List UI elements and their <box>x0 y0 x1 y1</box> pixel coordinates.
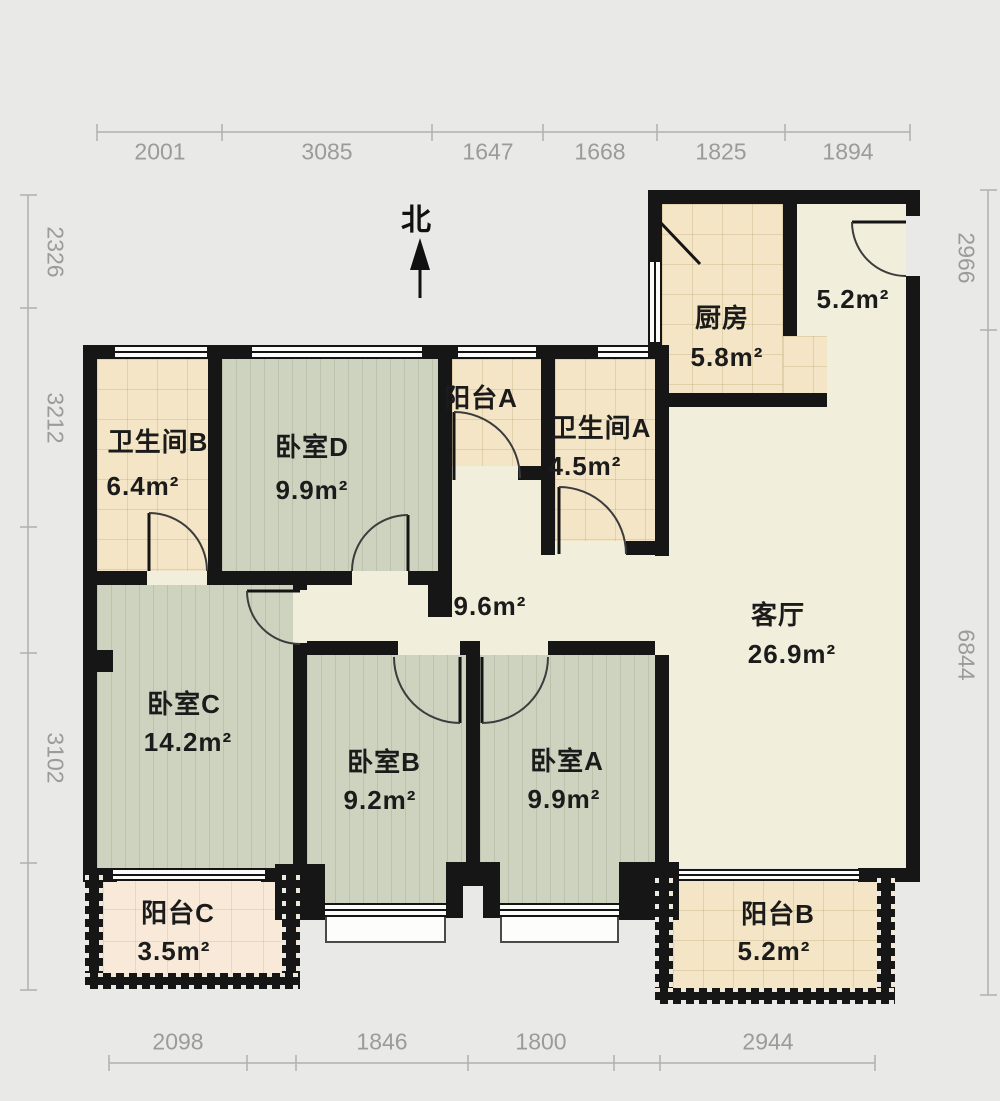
wall-segment <box>655 393 827 407</box>
window-symbol <box>679 869 859 881</box>
window-symbol <box>325 903 446 917</box>
balcony-wall <box>877 878 895 1004</box>
window-symbol <box>500 903 619 917</box>
room-area-kitchen: 5.8m² <box>691 344 764 370</box>
wall-segment <box>97 571 147 585</box>
floor-balcony-b <box>673 880 877 988</box>
room-area-living: 26.9m² <box>748 641 836 667</box>
balcony-wall <box>282 875 300 989</box>
room-area-balcony-b: 5.2m² <box>738 938 811 964</box>
room-area-hallway: 9.6m² <box>454 593 527 619</box>
balcony-wall <box>85 875 103 989</box>
dim-left-1: 2326 <box>44 226 67 277</box>
room-label-living: 客厅 <box>751 602 805 628</box>
window-symbol <box>458 345 536 359</box>
room-area-entry: 5.2m² <box>817 286 890 312</box>
wall-segment <box>648 190 920 204</box>
dim-bottom-1: 2098 <box>152 1031 203 1054</box>
wall-segment <box>293 571 307 590</box>
window-symbol <box>115 345 207 359</box>
wall-pier <box>83 650 113 672</box>
dim-left-2: 3212 <box>44 392 67 443</box>
window-symbol <box>598 345 648 359</box>
dim-right-2: 6844 <box>955 629 978 680</box>
wall-segment <box>783 204 797 336</box>
floor-plan-page: { "north_label": "北", "dimensions": { "t… <box>0 0 1000 1101</box>
wall-segment <box>655 655 669 868</box>
room-label-kitchen: 厨房 <box>695 305 749 331</box>
room-area-bedroom-c: 14.2m² <box>144 729 232 755</box>
dim-top-6: 1894 <box>822 141 873 164</box>
room-area-bathroom-a: 4.5m² <box>549 453 622 479</box>
wall-segment <box>438 345 452 585</box>
dim-top-3: 1647 <box>462 141 513 164</box>
room-label-bedroom-b: 卧室B <box>347 749 421 775</box>
room-area-bedroom-d: 9.9m² <box>276 477 349 503</box>
balcony-wall <box>655 988 895 1004</box>
wall-segment <box>207 571 352 585</box>
floor-bedroom-d <box>222 359 438 571</box>
dim-right-1: 2966 <box>955 232 978 283</box>
room-label-bathroom-b: 卫生间B <box>108 429 209 455</box>
wall-segment <box>541 345 555 555</box>
room-area-bathroom-b: 6.4m² <box>107 473 180 499</box>
dim-top-5: 1825 <box>695 141 746 164</box>
wall-stub <box>428 585 452 617</box>
window-symbol <box>252 345 422 359</box>
wall-segment <box>307 641 398 655</box>
dim-left-3: 3102 <box>44 732 67 783</box>
room-label-bedroom-c: 卧室C <box>147 691 221 717</box>
wall-segment <box>548 641 655 655</box>
floor-bathroom-a <box>555 359 655 541</box>
bay-window-sill <box>325 917 446 943</box>
room-label-bedroom-a: 卧室A <box>530 748 604 774</box>
north-label: 北 <box>401 195 431 239</box>
window-symbol <box>113 868 265 881</box>
room-label-bedroom-d: 卧室D <box>275 434 349 460</box>
room-label-balcony-a: 阳台A <box>444 385 518 411</box>
wall-notch <box>463 886 483 918</box>
dim-top-2: 3085 <box>301 141 352 164</box>
wall-segment <box>655 345 669 556</box>
floor-bedroom-b <box>307 655 466 905</box>
wall-segment <box>83 345 97 882</box>
dim-top-1: 2001 <box>134 141 185 164</box>
dim-bottom-2: 1846 <box>356 1031 407 1054</box>
wall-segment <box>518 466 541 480</box>
floor-bathroom-b <box>97 359 208 571</box>
north-arrow <box>410 238 430 298</box>
room-area-balcony-c: 3.5m² <box>138 938 211 964</box>
room-label-balcony-c: 阳台C <box>141 900 215 926</box>
room-area-bedroom-a: 9.9m² <box>528 786 601 812</box>
wall-segment <box>626 541 655 555</box>
dim-bottom-4: 2944 <box>742 1031 793 1054</box>
balcony-wall <box>85 973 300 989</box>
bay-window-sill <box>500 917 619 943</box>
wall-segment <box>906 190 920 882</box>
door-opening <box>906 216 920 276</box>
wall-segment <box>208 359 222 571</box>
dim-bottom-3: 1800 <box>515 1031 566 1054</box>
dim-top-4: 1668 <box>574 141 625 164</box>
balcony-wall <box>655 878 673 1004</box>
floor-kitchen-strip <box>783 336 827 394</box>
window-symbol <box>648 262 662 342</box>
room-label-balcony-b: 阳台B <box>741 901 815 927</box>
room-area-bedroom-b: 9.2m² <box>344 787 417 813</box>
room-label-bathroom-a: 卫生间A <box>551 415 652 441</box>
wall-segment <box>460 641 480 655</box>
